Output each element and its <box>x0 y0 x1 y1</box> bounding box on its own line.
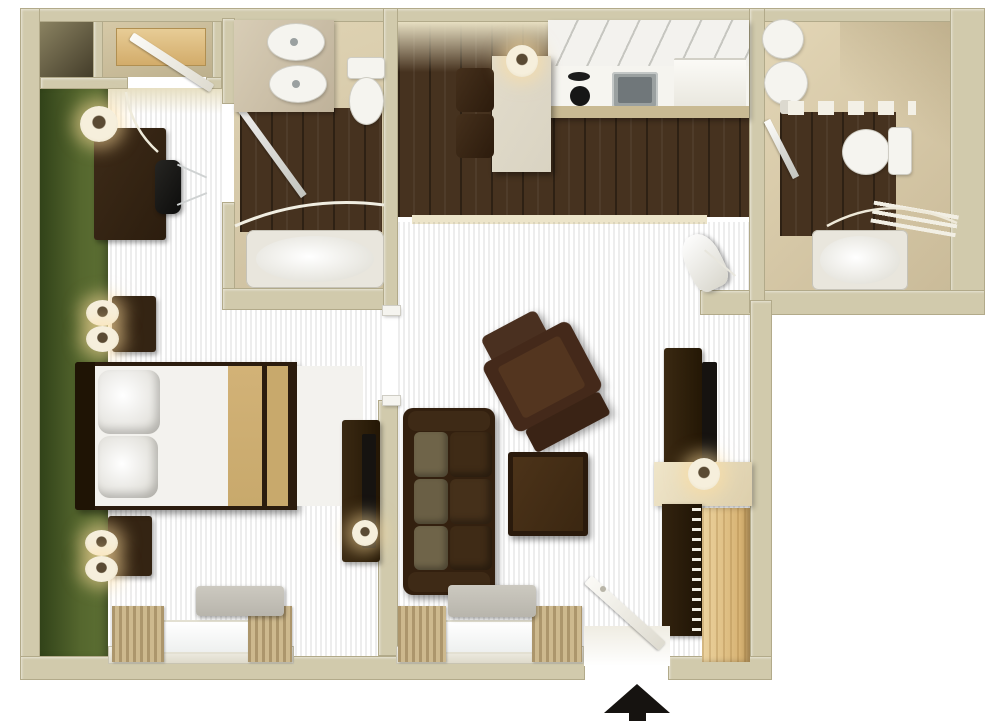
floor-plan <box>0 0 1000 721</box>
closet-door-arc <box>126 92 158 152</box>
door-swing-arcs <box>0 0 1000 721</box>
bathroom-2-door-arc <box>827 208 957 226</box>
shower-rod-arc <box>235 203 384 226</box>
